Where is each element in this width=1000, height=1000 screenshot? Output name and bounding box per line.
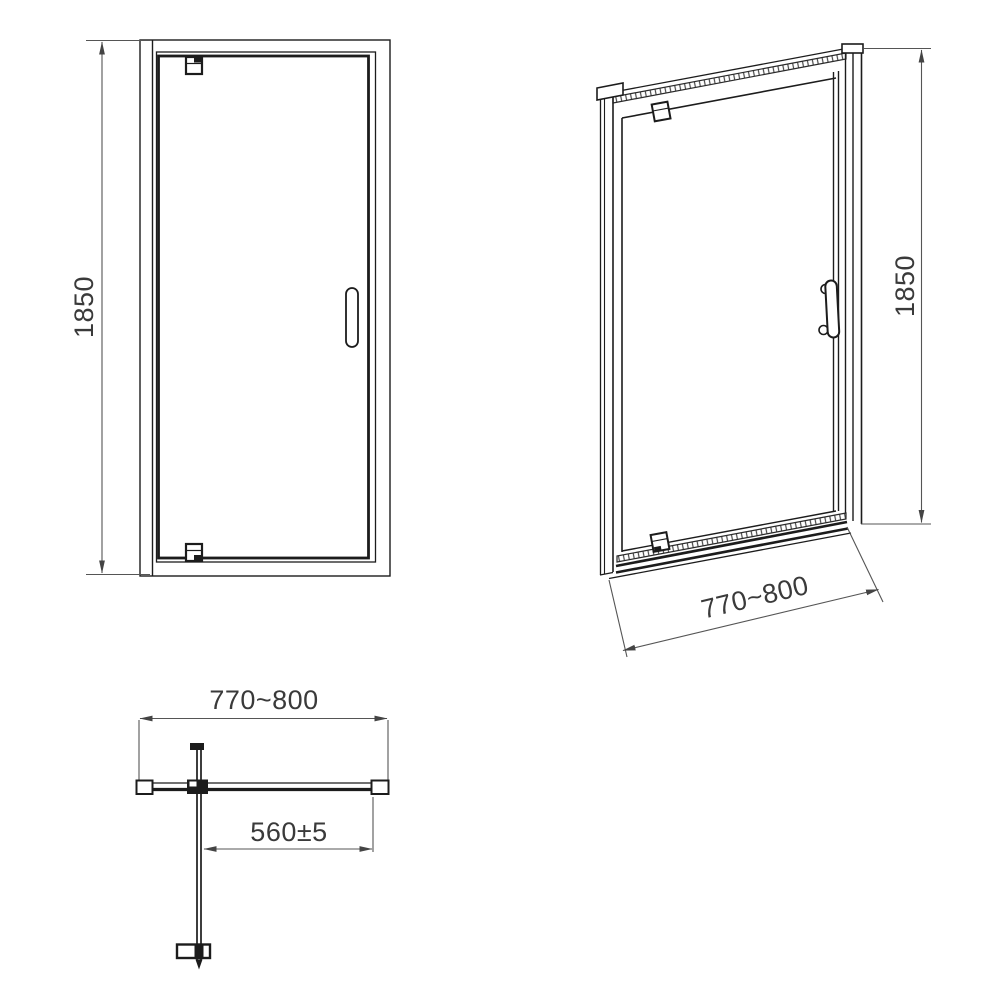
plan-door-handle-post bbox=[195, 944, 204, 960]
persp-height-label: 1850 bbox=[890, 255, 920, 317]
plan-rail-end-cap-left bbox=[137, 781, 153, 795]
plan-door-top-cap bbox=[190, 743, 204, 750]
front-door-handle bbox=[346, 288, 358, 347]
plan-rail-end-cap-right bbox=[372, 781, 389, 795]
front-hinge-bottom bbox=[186, 544, 202, 561]
persp-hinge-top bbox=[652, 102, 671, 122]
plan-width-label: 770~800 bbox=[209, 685, 318, 715]
front-hinge-bottom-pin bbox=[194, 555, 201, 561]
plan-opening-label: 560±5 bbox=[250, 817, 327, 847]
front-height-label: 1850 bbox=[69, 276, 99, 338]
plan-door-handle bbox=[177, 945, 210, 959]
persp-handle-bar bbox=[825, 280, 839, 338]
persp-hinge-bottom bbox=[651, 532, 670, 552]
persp-hinge-top-body bbox=[652, 102, 671, 122]
front-hinge-top bbox=[186, 57, 202, 74]
front-hinge-top-pin bbox=[194, 57, 201, 63]
plan-pivot-notch bbox=[190, 782, 197, 787]
persp-right-frame-cap bbox=[842, 44, 863, 53]
technical-drawing-canvas: 1850 bbox=[0, 0, 1000, 1000]
